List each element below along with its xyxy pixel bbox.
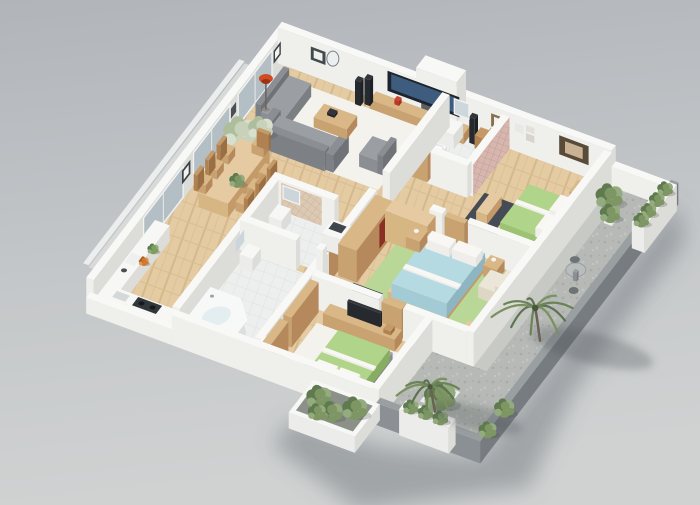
burner (139, 301, 145, 305)
table-leg (573, 269, 579, 282)
burner (150, 305, 156, 309)
kitchen-pot (121, 268, 127, 272)
faucet (210, 295, 214, 298)
wall-clock (327, 51, 339, 66)
floor-plan-3d-render (0, 0, 700, 505)
table-lamp (491, 258, 496, 262)
terrace-chair (569, 287, 579, 294)
decor-vase (355, 76, 364, 106)
table-lamp (414, 229, 419, 233)
terrace-chair (570, 256, 580, 263)
speaker (364, 74, 373, 106)
floor-plan-screenshot (0, 0, 700, 505)
